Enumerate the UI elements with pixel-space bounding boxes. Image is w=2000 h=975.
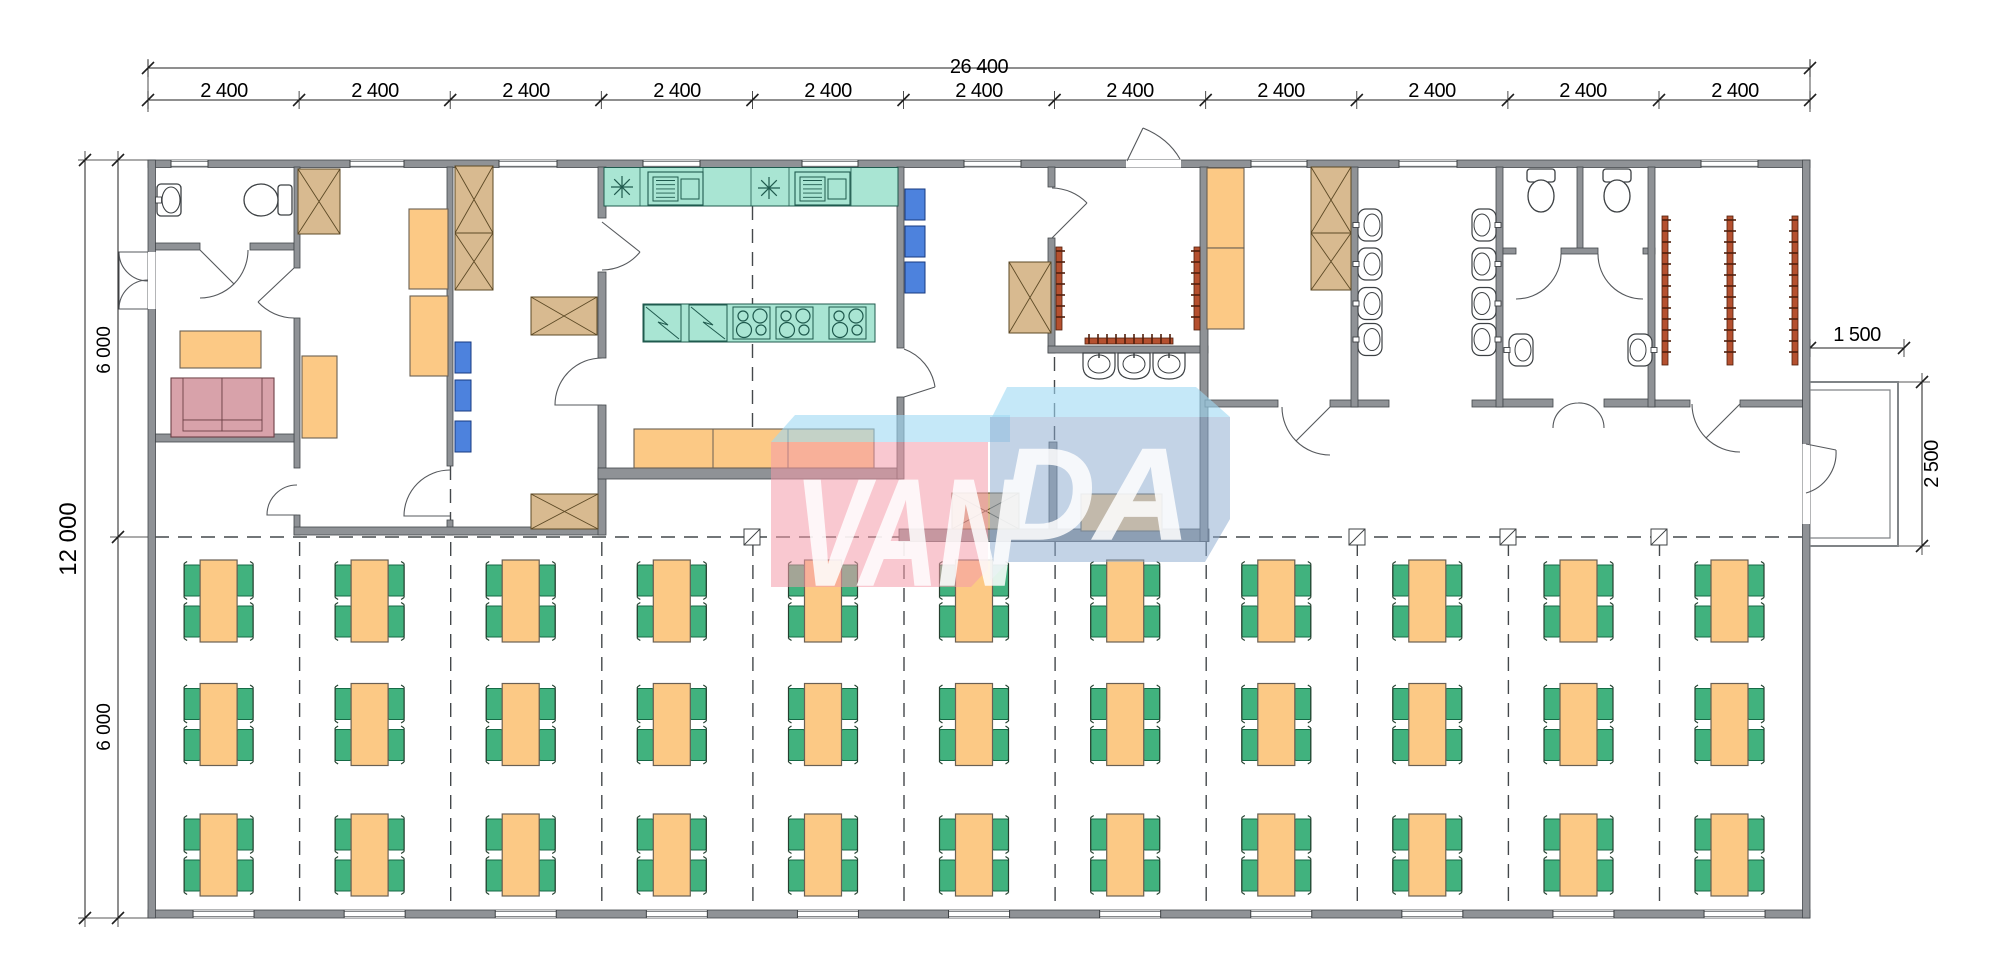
svg-text:2 400: 2 400 — [200, 80, 248, 102]
svg-text:2 400: 2 400 — [955, 80, 1003, 102]
svg-text:2 500: 2 500 — [1921, 440, 1943, 488]
svg-text:2 400: 2 400 — [804, 80, 852, 102]
svg-text:2 400: 2 400 — [1408, 80, 1456, 102]
svg-text:2 400: 2 400 — [1711, 80, 1759, 102]
svg-text:2 400: 2 400 — [653, 80, 701, 102]
svg-text:26 400: 26 400 — [950, 56, 1009, 78]
svg-text:12 000: 12 000 — [55, 502, 82, 575]
svg-text:2 400: 2 400 — [351, 80, 399, 102]
svg-text:1 500: 1 500 — [1833, 324, 1881, 346]
svg-text:2 400: 2 400 — [1559, 80, 1607, 102]
svg-text:2 400: 2 400 — [1257, 80, 1305, 102]
svg-text:DA: DA — [1000, 421, 1190, 567]
svg-text:6 000: 6 000 — [94, 326, 115, 374]
svg-text:2 400: 2 400 — [1106, 80, 1154, 102]
svg-text:2 400: 2 400 — [502, 80, 550, 102]
svg-text:6 000: 6 000 — [94, 703, 115, 751]
svg-text:VAN: VAN — [795, 448, 1019, 618]
